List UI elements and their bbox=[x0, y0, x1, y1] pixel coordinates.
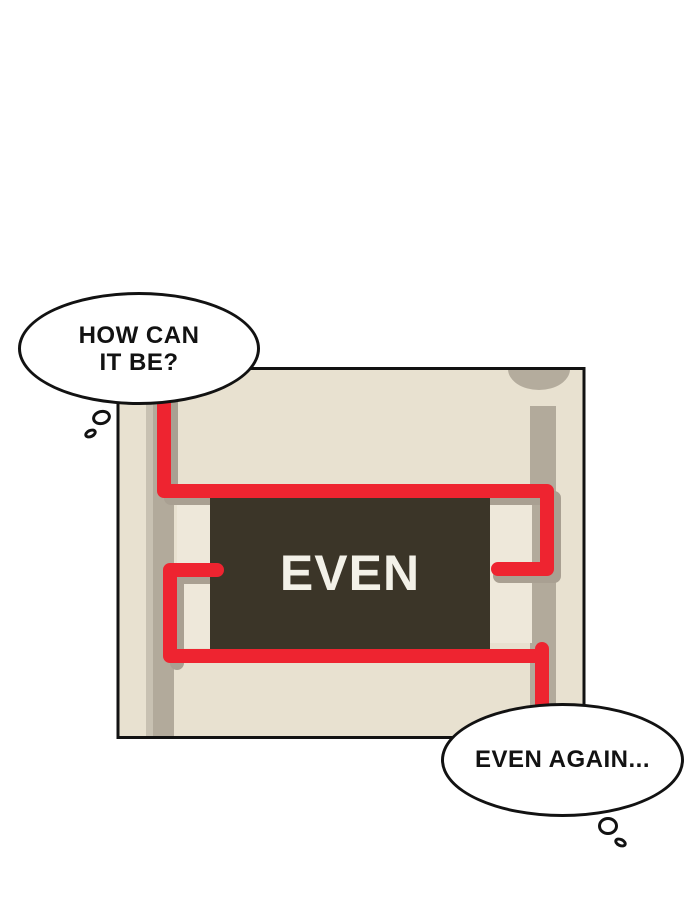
thought-bubble-top-left: HOW CAN IT BE? bbox=[18, 292, 260, 405]
thought-tail-large-bottom-right bbox=[598, 817, 618, 835]
comic-panel-scene: EVEN HOW CAN IT BE? EVEN AGAIN... bbox=[0, 0, 700, 917]
thought-bubble-top-left-line2: IT BE? bbox=[100, 349, 179, 376]
thought-bubble-top-left-line1: HOW CAN bbox=[79, 322, 200, 349]
thought-bubble-bottom-right-text: EVEN AGAIN... bbox=[475, 746, 650, 774]
thought-bubble-bottom-right: EVEN AGAIN... bbox=[441, 703, 684, 817]
label-box-text: EVEN bbox=[210, 492, 490, 653]
